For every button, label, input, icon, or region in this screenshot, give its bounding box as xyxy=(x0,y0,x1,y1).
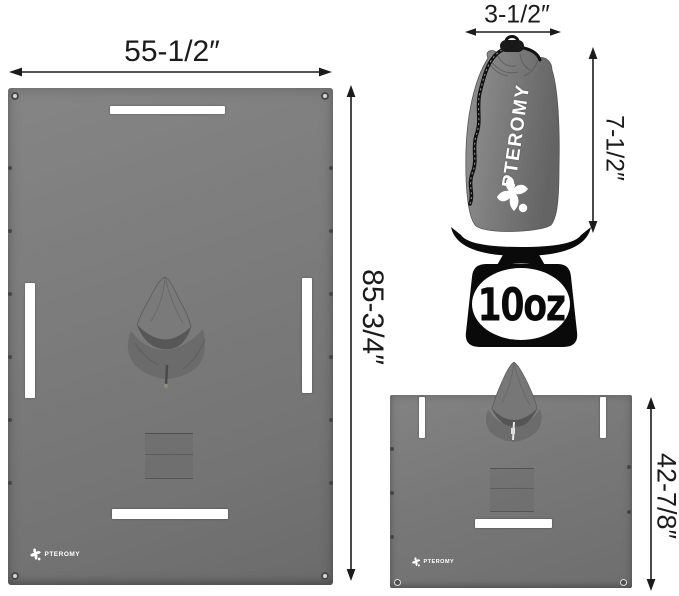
tarp-height-label: 85-3/4″ xyxy=(355,269,389,365)
grommet xyxy=(321,92,329,100)
weight-label: 10oz xyxy=(477,279,564,332)
snap-button xyxy=(8,355,12,359)
pteromy-logo-icon xyxy=(30,548,42,561)
poncho-flat-view: PTEROMY xyxy=(8,88,333,585)
reflective-strip-right xyxy=(302,278,312,393)
cord-lock-toggle xyxy=(500,40,524,52)
poncho-height-label: 42-7/8″ xyxy=(651,453,679,539)
reflective-strip-left xyxy=(419,397,425,438)
storage-pocket xyxy=(490,468,534,512)
snap-button xyxy=(329,229,333,233)
snap-button xyxy=(394,579,401,586)
snap-button xyxy=(329,166,333,170)
snap-button xyxy=(8,292,12,296)
tarp-width-label: 55-1/2″ xyxy=(124,35,220,69)
snap-button xyxy=(627,465,631,469)
bag-height-arrow-icon xyxy=(586,46,600,234)
reflective-strip-top xyxy=(110,106,225,114)
reflective-strip-right xyxy=(600,397,606,438)
grommet xyxy=(321,572,329,580)
reflective-strip-bottom xyxy=(475,519,552,528)
product-dimension-diagram: 55-1/2″ 85-3/4″ xyxy=(0,0,679,596)
reflective-strip-left xyxy=(25,283,35,398)
hood xyxy=(484,358,546,444)
snap-button xyxy=(390,491,394,495)
pteromy-logo-icon xyxy=(497,176,531,214)
pteromy-logo-icon xyxy=(412,557,421,567)
brand-logo: PTEROMY xyxy=(412,557,454,567)
bag-height-label: 7-1/2″ xyxy=(600,115,629,181)
snap-button xyxy=(329,481,333,485)
tarp-width-arrow-icon xyxy=(8,65,333,79)
brand-logo: PTEROMY xyxy=(30,548,80,561)
snap-button xyxy=(8,166,12,170)
storage-pocket xyxy=(145,433,193,479)
snap-button xyxy=(8,418,12,422)
snap-button xyxy=(8,229,12,233)
grommet xyxy=(11,572,19,580)
reflective-strip-bottom xyxy=(112,509,228,519)
snap-button xyxy=(627,510,631,514)
brand-logo-text: PTEROMY xyxy=(424,559,455,565)
snap-button xyxy=(329,355,333,359)
grommet xyxy=(11,92,19,100)
zipper-pull xyxy=(511,428,515,434)
hood xyxy=(125,273,217,398)
snap-button xyxy=(8,481,12,485)
snap-button xyxy=(390,447,394,451)
brand-logo-text: PTEROMY xyxy=(45,551,81,558)
snap-button xyxy=(329,418,333,422)
snap-button xyxy=(620,579,627,586)
snap-button xyxy=(390,535,394,539)
snap-button xyxy=(329,292,333,296)
